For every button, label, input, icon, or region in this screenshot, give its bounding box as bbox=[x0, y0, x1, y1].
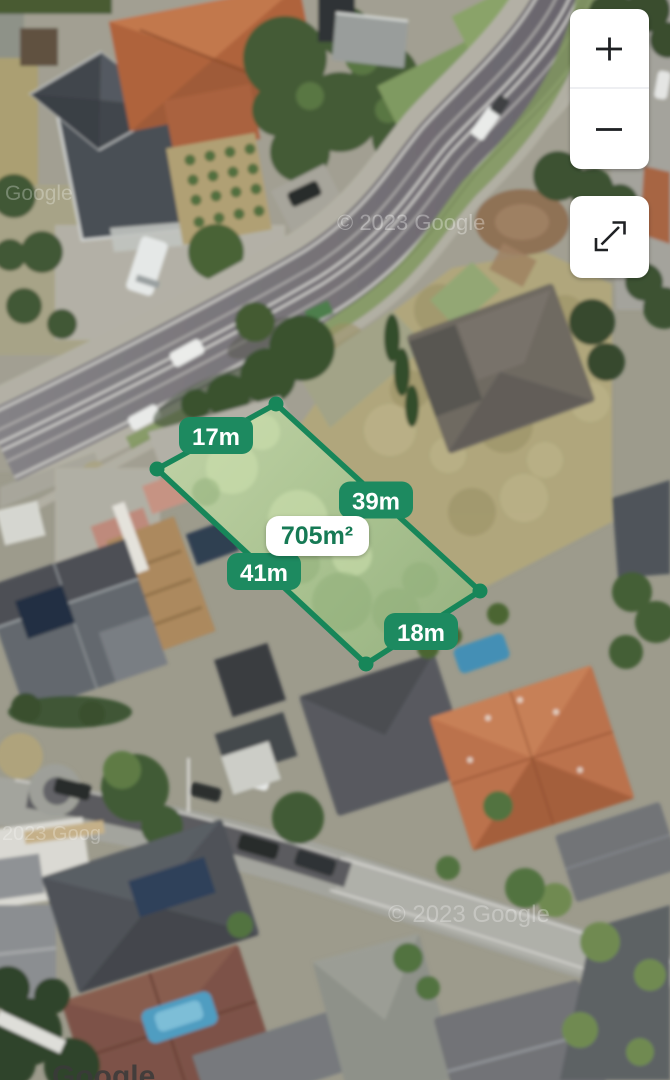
svg-text:2023 Goog: 2023 Goog bbox=[2, 823, 101, 845]
svg-text:41m: 41m bbox=[240, 560, 288, 587]
svg-text:Google: Google bbox=[5, 182, 73, 205]
svg-text:39m: 39m bbox=[352, 489, 400, 516]
svg-text:© 2023 Google: © 2023 Google bbox=[388, 901, 550, 928]
svg-text:Google: Google bbox=[52, 1060, 155, 1080]
svg-text:18m: 18m bbox=[397, 620, 445, 647]
svg-text:705m²: 705m² bbox=[281, 522, 353, 550]
svg-text:© 2023 Google: © 2023 Google bbox=[337, 210, 485, 235]
svg-text:17m: 17m bbox=[192, 424, 240, 451]
